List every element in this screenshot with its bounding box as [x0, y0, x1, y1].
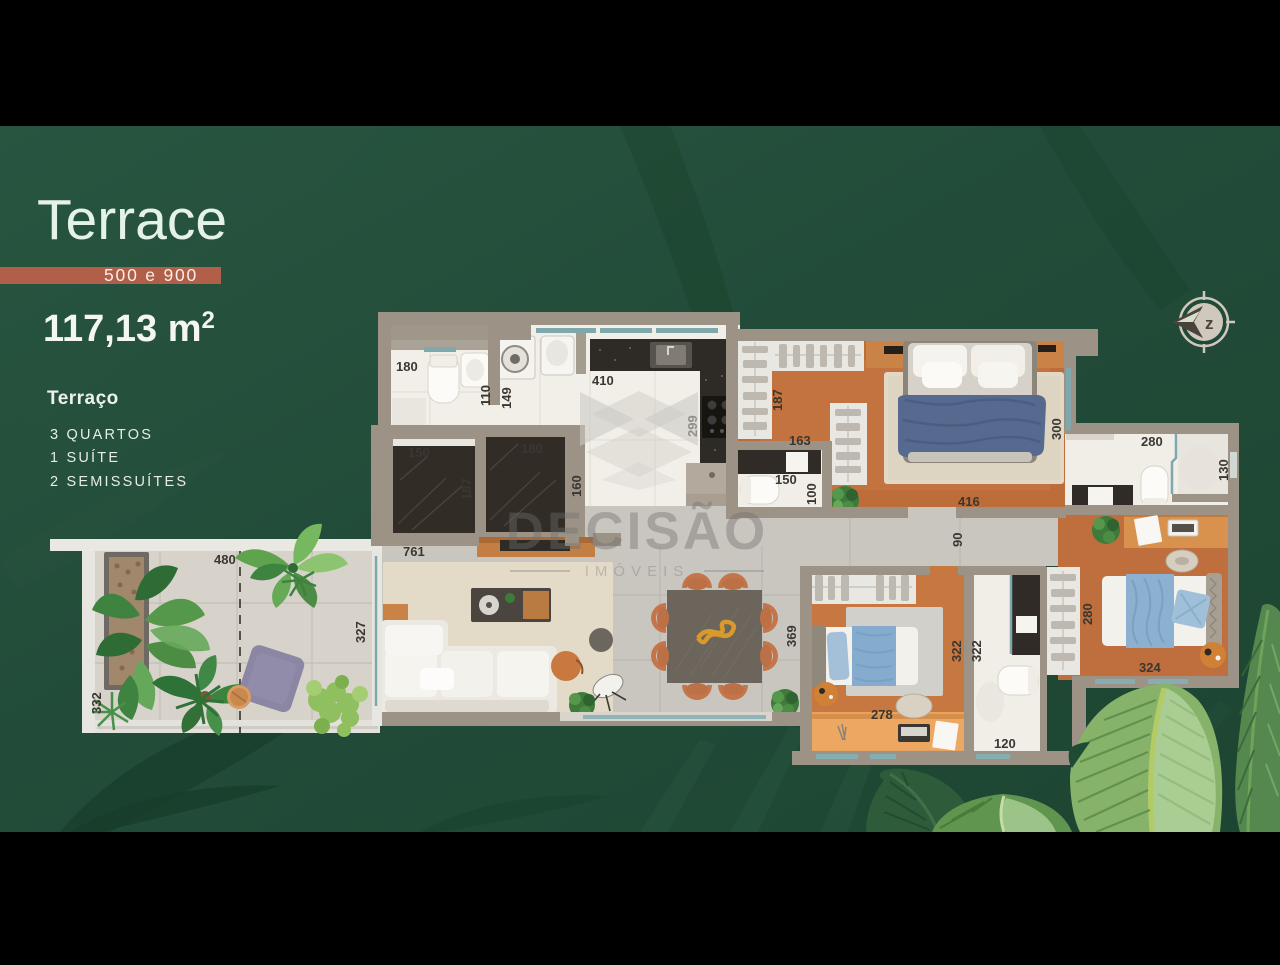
- svg-text:z: z: [1205, 314, 1214, 333]
- svg-text:3 QUARTOS: 3 QUARTOS: [50, 427, 153, 443]
- svg-text:117,13 m2: 117,13 m2: [43, 307, 215, 350]
- svg-text:IMÓVEIS: IMÓVEIS: [585, 563, 690, 580]
- svg-text:410: 410: [592, 373, 614, 388]
- svg-text:480: 480: [214, 552, 236, 567]
- svg-text:100: 100: [804, 483, 819, 505]
- svg-text:Terrace: Terrace: [37, 188, 227, 252]
- svg-text:150: 150: [775, 472, 797, 487]
- svg-text:163: 163: [789, 433, 811, 448]
- svg-text:180: 180: [396, 359, 418, 374]
- svg-text:90: 90: [950, 533, 965, 547]
- svg-text:150: 150: [408, 445, 430, 460]
- svg-text:180: 180: [521, 441, 543, 456]
- svg-text:160: 160: [569, 475, 584, 497]
- svg-text:324: 324: [1139, 660, 1161, 675]
- svg-text:1 SUÍTE: 1 SUÍTE: [50, 449, 120, 466]
- svg-text:280: 280: [1080, 603, 1095, 625]
- svg-text:278: 278: [871, 707, 893, 722]
- svg-text:120: 120: [994, 736, 1016, 751]
- svg-text:369: 369: [784, 625, 799, 647]
- svg-text:416: 416: [958, 494, 980, 509]
- svg-text:2 SEMISSUÍTES: 2 SEMISSUÍTES: [50, 473, 188, 490]
- svg-text:322: 322: [969, 640, 984, 662]
- svg-text:300: 300: [1049, 418, 1064, 440]
- svg-text:322: 322: [949, 640, 964, 662]
- svg-text:Terraço: Terraço: [47, 388, 119, 409]
- svg-text:DECISÃO: DECISÃO: [506, 501, 768, 561]
- svg-text:500 e 900: 500 e 900: [104, 265, 198, 285]
- svg-text:187: 187: [459, 478, 474, 500]
- svg-text:110: 110: [478, 385, 493, 406]
- svg-text:280: 280: [1141, 434, 1163, 449]
- svg-text:187: 187: [770, 389, 785, 411]
- svg-text:332: 332: [89, 692, 104, 714]
- svg-text:130: 130: [1216, 459, 1231, 481]
- svg-text:761: 761: [403, 544, 425, 559]
- svg-text:149: 149: [499, 387, 514, 409]
- svg-text:327: 327: [353, 621, 368, 643]
